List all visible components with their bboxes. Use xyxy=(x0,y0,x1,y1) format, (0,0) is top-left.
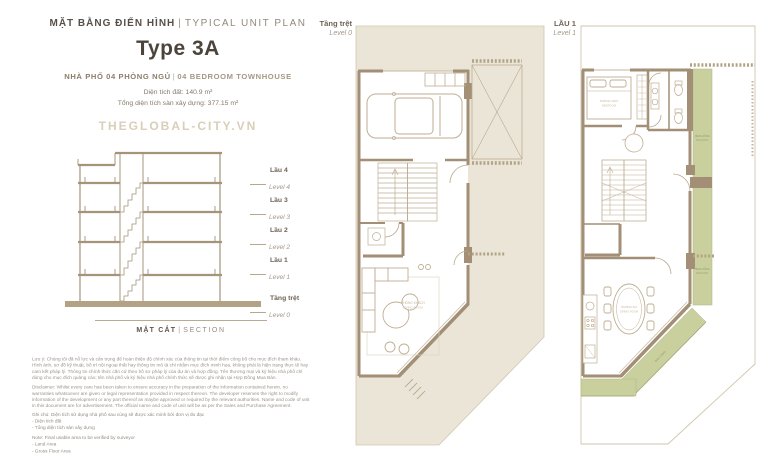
bed xyxy=(587,77,631,119)
level0-plan-drawing: PHÒNG KHÁCH LIVING ROOM xyxy=(355,25,547,447)
subtitle-vietnamese: NHÀ PHỐ 04 PHÒNG NGỦ xyxy=(64,72,171,81)
leader-line xyxy=(250,244,266,245)
floor-label-level2: Lầu 2 Level 2 xyxy=(250,227,310,254)
title-english: TYPICAL UNIT PLAN xyxy=(185,18,307,29)
gfa-value: Tổng diện tích sàn xây dựng: 377.15 m² xyxy=(30,99,326,110)
bedroom-label-en: BEDROOM xyxy=(602,104,617,108)
bedroom-label-vi: PHÒNG NGỦ xyxy=(600,98,619,103)
armchair xyxy=(625,134,643,152)
area-figures: Diện tích đất: 140.9 m² Tổng diện tích s… xyxy=(30,88,326,110)
note-vi-title: Ghi chú: Diện tích sử dụng nhà phố sau c… xyxy=(32,411,310,418)
level0-plan-header: Tầng trệt Level 0 xyxy=(298,19,352,37)
document-header: MẶT BẰNG ĐIỂN HÌNH|TYPICAL UNIT PLAN Typ… xyxy=(30,18,326,133)
leader-line xyxy=(250,274,266,275)
disclaimer-english: Disclaimer: Whilst every care has been t… xyxy=(32,384,310,408)
section-elevation-drawing xyxy=(65,145,270,317)
leader-line xyxy=(250,214,266,215)
page-title: MẶT BẰNG ĐIỂN HÌNH|TYPICAL UNIT PLAN xyxy=(30,18,326,29)
unit-subtitle: NHÀ PHỐ 04 PHÒNG NGỦ|04 BEDROOM TOWNHOUS… xyxy=(30,72,326,81)
stairs xyxy=(602,160,646,221)
kitchen-counter xyxy=(583,295,597,363)
disclaimer-block: Lưu ý: Chúng tôi đã nỗ lực và cẩn trọng … xyxy=(32,356,312,408)
car-icon xyxy=(367,93,462,140)
stair-zigzags xyxy=(120,183,143,301)
floor-plan-document: MẶT BẰNG ĐIỂN HÌNH|TYPICAL UNIT PLAN Typ… xyxy=(0,0,768,468)
ground-line xyxy=(65,301,261,307)
wall-pier xyxy=(686,165,695,175)
floor-label-level0: Tầng trệt Level 0 xyxy=(250,295,310,322)
floor-label-level4: Lầu 4 Level 4 xyxy=(250,167,310,194)
floor-slabs xyxy=(78,153,222,275)
subtitle-english: 04 BEDROOM TOWNHOUSE xyxy=(177,72,291,81)
living-room-label-en: LIVING ROOM xyxy=(403,306,423,310)
balcony-divider-wall xyxy=(690,177,712,188)
leader-line xyxy=(250,312,266,313)
caption-english: SECTION xyxy=(183,327,225,334)
slab-posts xyxy=(78,159,215,275)
leader-line xyxy=(250,184,266,185)
title-divider: | xyxy=(175,18,185,29)
level1-plan-drawing: PHÒNG NGỦ BEDROOM xyxy=(560,25,768,447)
note-vi-item-land: - Diện tích đất xyxy=(32,418,310,425)
disclaimer-vietnamese: Lưu ý: Chúng tôi đã nỗ lực và cẩn trọng … xyxy=(32,356,310,381)
wall-pier xyxy=(687,69,693,131)
land-area-value: Diện tích đất: 140.9 m² xyxy=(30,88,326,99)
level0-label-vi: Tầng trệt xyxy=(298,19,352,28)
floor-label-level3: Lầu 3 Level 3 xyxy=(250,197,310,224)
dining-label-en: DINING ROOM xyxy=(620,310,638,314)
living-room-label-vi: PHÒNG KHÁCH xyxy=(401,300,425,305)
balcony-label-en: BALCONY xyxy=(697,139,709,142)
watermark-text: THEGLOBAL-CITY.VN xyxy=(30,119,326,133)
floor-level-labels: Lầu 4 Level 4 Lầu 3 Level 3 Lầu 2 Level … xyxy=(250,145,320,325)
balcony-label-en-2: BALCONY xyxy=(697,272,709,275)
unit-type-label: Type 3A xyxy=(30,37,326,61)
stairs xyxy=(378,163,437,221)
caption-rule xyxy=(95,320,267,321)
note-vi-item-gfa: - Tổng diện tích sàn xây dựng xyxy=(32,424,310,431)
level0-label-en: Level 0 xyxy=(298,30,352,37)
note-en-item-gfa: - Gross Floor Area xyxy=(32,447,310,454)
title-vietnamese: MẶT BẰNG ĐIỂN HÌNH xyxy=(49,18,175,29)
note-en-title: Note: Final usable area to be verified b… xyxy=(32,434,310,441)
dining-label-vi: PHÒNG ĂN xyxy=(621,304,636,309)
floor-label-level1: Lầu 1 Level 1 xyxy=(250,257,310,284)
notes-block: Ghi chú: Diện tích sử dụng nhà phố sau c… xyxy=(32,411,312,463)
caption-vietnamese: MẶT CẮT xyxy=(136,327,176,334)
section-columns xyxy=(80,153,220,301)
section-caption: MẶT CẮT|SECTION xyxy=(95,320,267,334)
